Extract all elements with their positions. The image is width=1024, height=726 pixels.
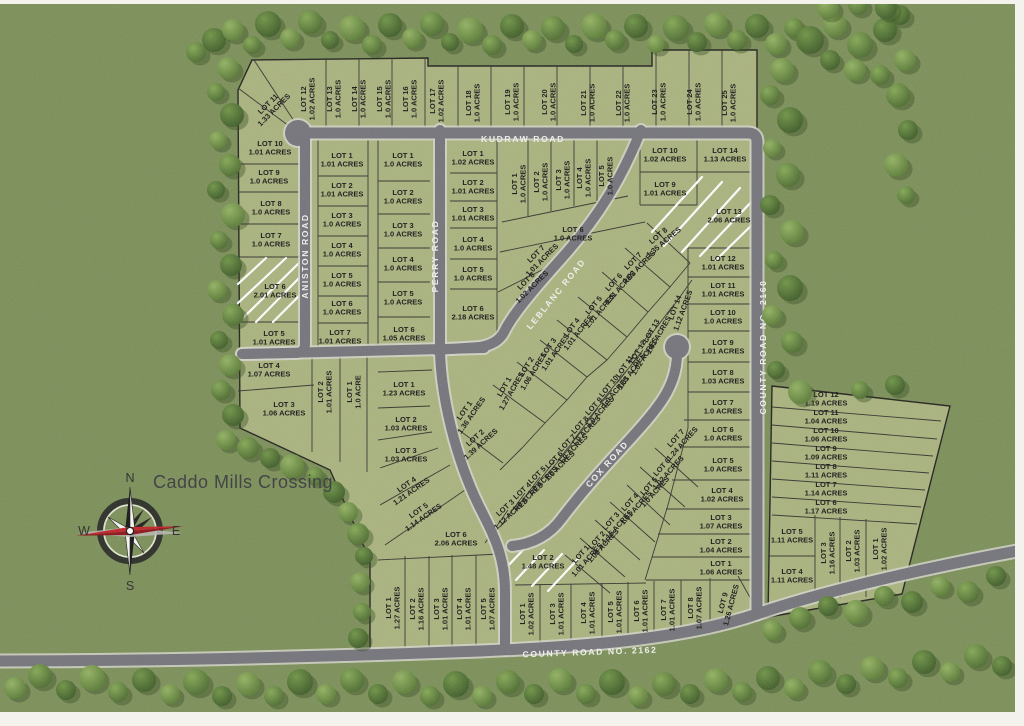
plat-map-canvas: KUDRAW ROADANISTON ROADPERRY ROADLEBLANC…: [0, 0, 1024, 726]
plat-map: KUDRAW ROADANISTON ROADPERRY ROADLEBLANC…: [0, 0, 1024, 726]
texture-overlay: [0, 0, 1024, 726]
